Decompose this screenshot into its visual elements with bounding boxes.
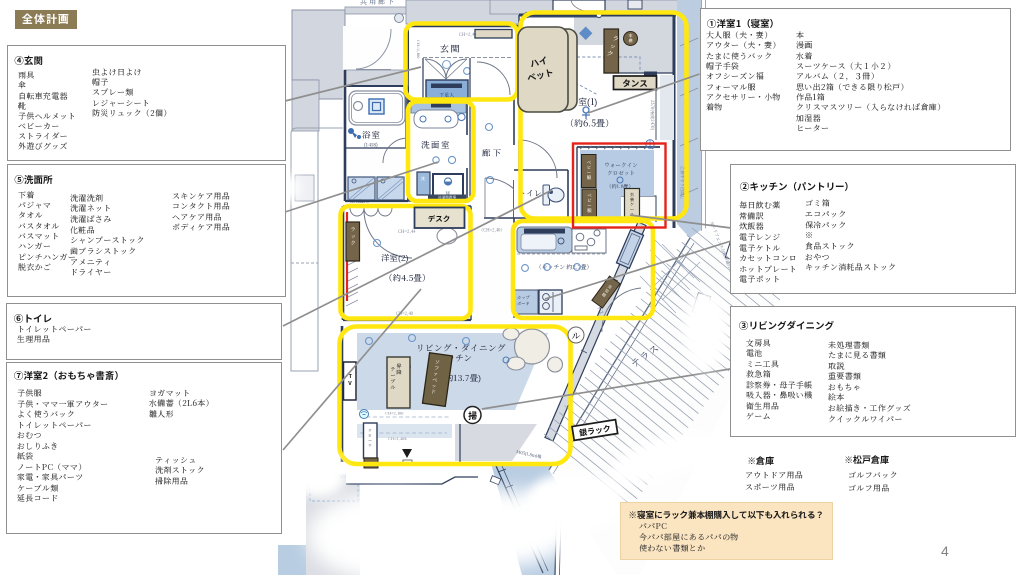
svg-text:デスク: デスク bbox=[428, 214, 451, 225]
svg-text:クロゼット: クロゼット bbox=[607, 169, 635, 177]
svg-text:（約4.5畳）: （約4.5畳） bbox=[384, 272, 430, 284]
svg-text:タンス: タンス bbox=[622, 78, 648, 90]
svg-text:ル: ル bbox=[390, 384, 396, 391]
svg-text:廊下: 廊下 bbox=[482, 147, 503, 159]
svg-text:降: 降 bbox=[396, 369, 402, 376]
svg-text:洗: 洗 bbox=[421, 176, 425, 182]
svg-text:（CH=2,40）: （CH=2,40） bbox=[479, 228, 505, 234]
svg-text:室(1): 室(1) bbox=[578, 95, 597, 108]
svg-text:掃: 掃 bbox=[467, 409, 477, 422]
svg-text:服: 服 bbox=[586, 208, 592, 214]
svg-text:CH=2,40: CH=2,40 bbox=[459, 32, 477, 38]
svg-text:ウォークイン: ウォークイン bbox=[604, 161, 638, 169]
svg-text:2570(有効2470): 2570(有効2470) bbox=[649, 100, 656, 131]
svg-text:ル: ル bbox=[571, 329, 580, 342]
svg-text:洗面室: 洗面室 bbox=[421, 139, 451, 151]
svg-text:CH=2,100: CH=2,100 bbox=[385, 411, 404, 417]
svg-text:玄関: 玄関 bbox=[440, 42, 461, 55]
svg-text:ボード: ボード bbox=[517, 301, 530, 307]
svg-text:ク: ク bbox=[368, 443, 372, 449]
svg-text:棚: 棚 bbox=[628, 38, 633, 44]
svg-text:ド: ド bbox=[430, 388, 436, 396]
svg-text:浴室: 浴室 bbox=[362, 129, 381, 141]
svg-text:CH=2,44: CH=2,44 bbox=[398, 229, 416, 235]
svg-text:服: 服 bbox=[586, 175, 592, 181]
svg-text:ク: ク bbox=[350, 239, 356, 247]
svg-text:(1418): (1418) bbox=[364, 142, 378, 149]
svg-text:CH=1,40k: CH=1,40k bbox=[388, 436, 407, 442]
svg-text:洋室(2): 洋室(2) bbox=[381, 252, 409, 264]
svg-text:CH=2,180: CH=2,180 bbox=[415, 40, 421, 59]
svg-text:V: V bbox=[347, 379, 352, 387]
svg-text:（約6.5畳）: （約6.5畳） bbox=[565, 117, 614, 130]
svg-text:共用廊下: 共用廊下 bbox=[360, 0, 396, 7]
